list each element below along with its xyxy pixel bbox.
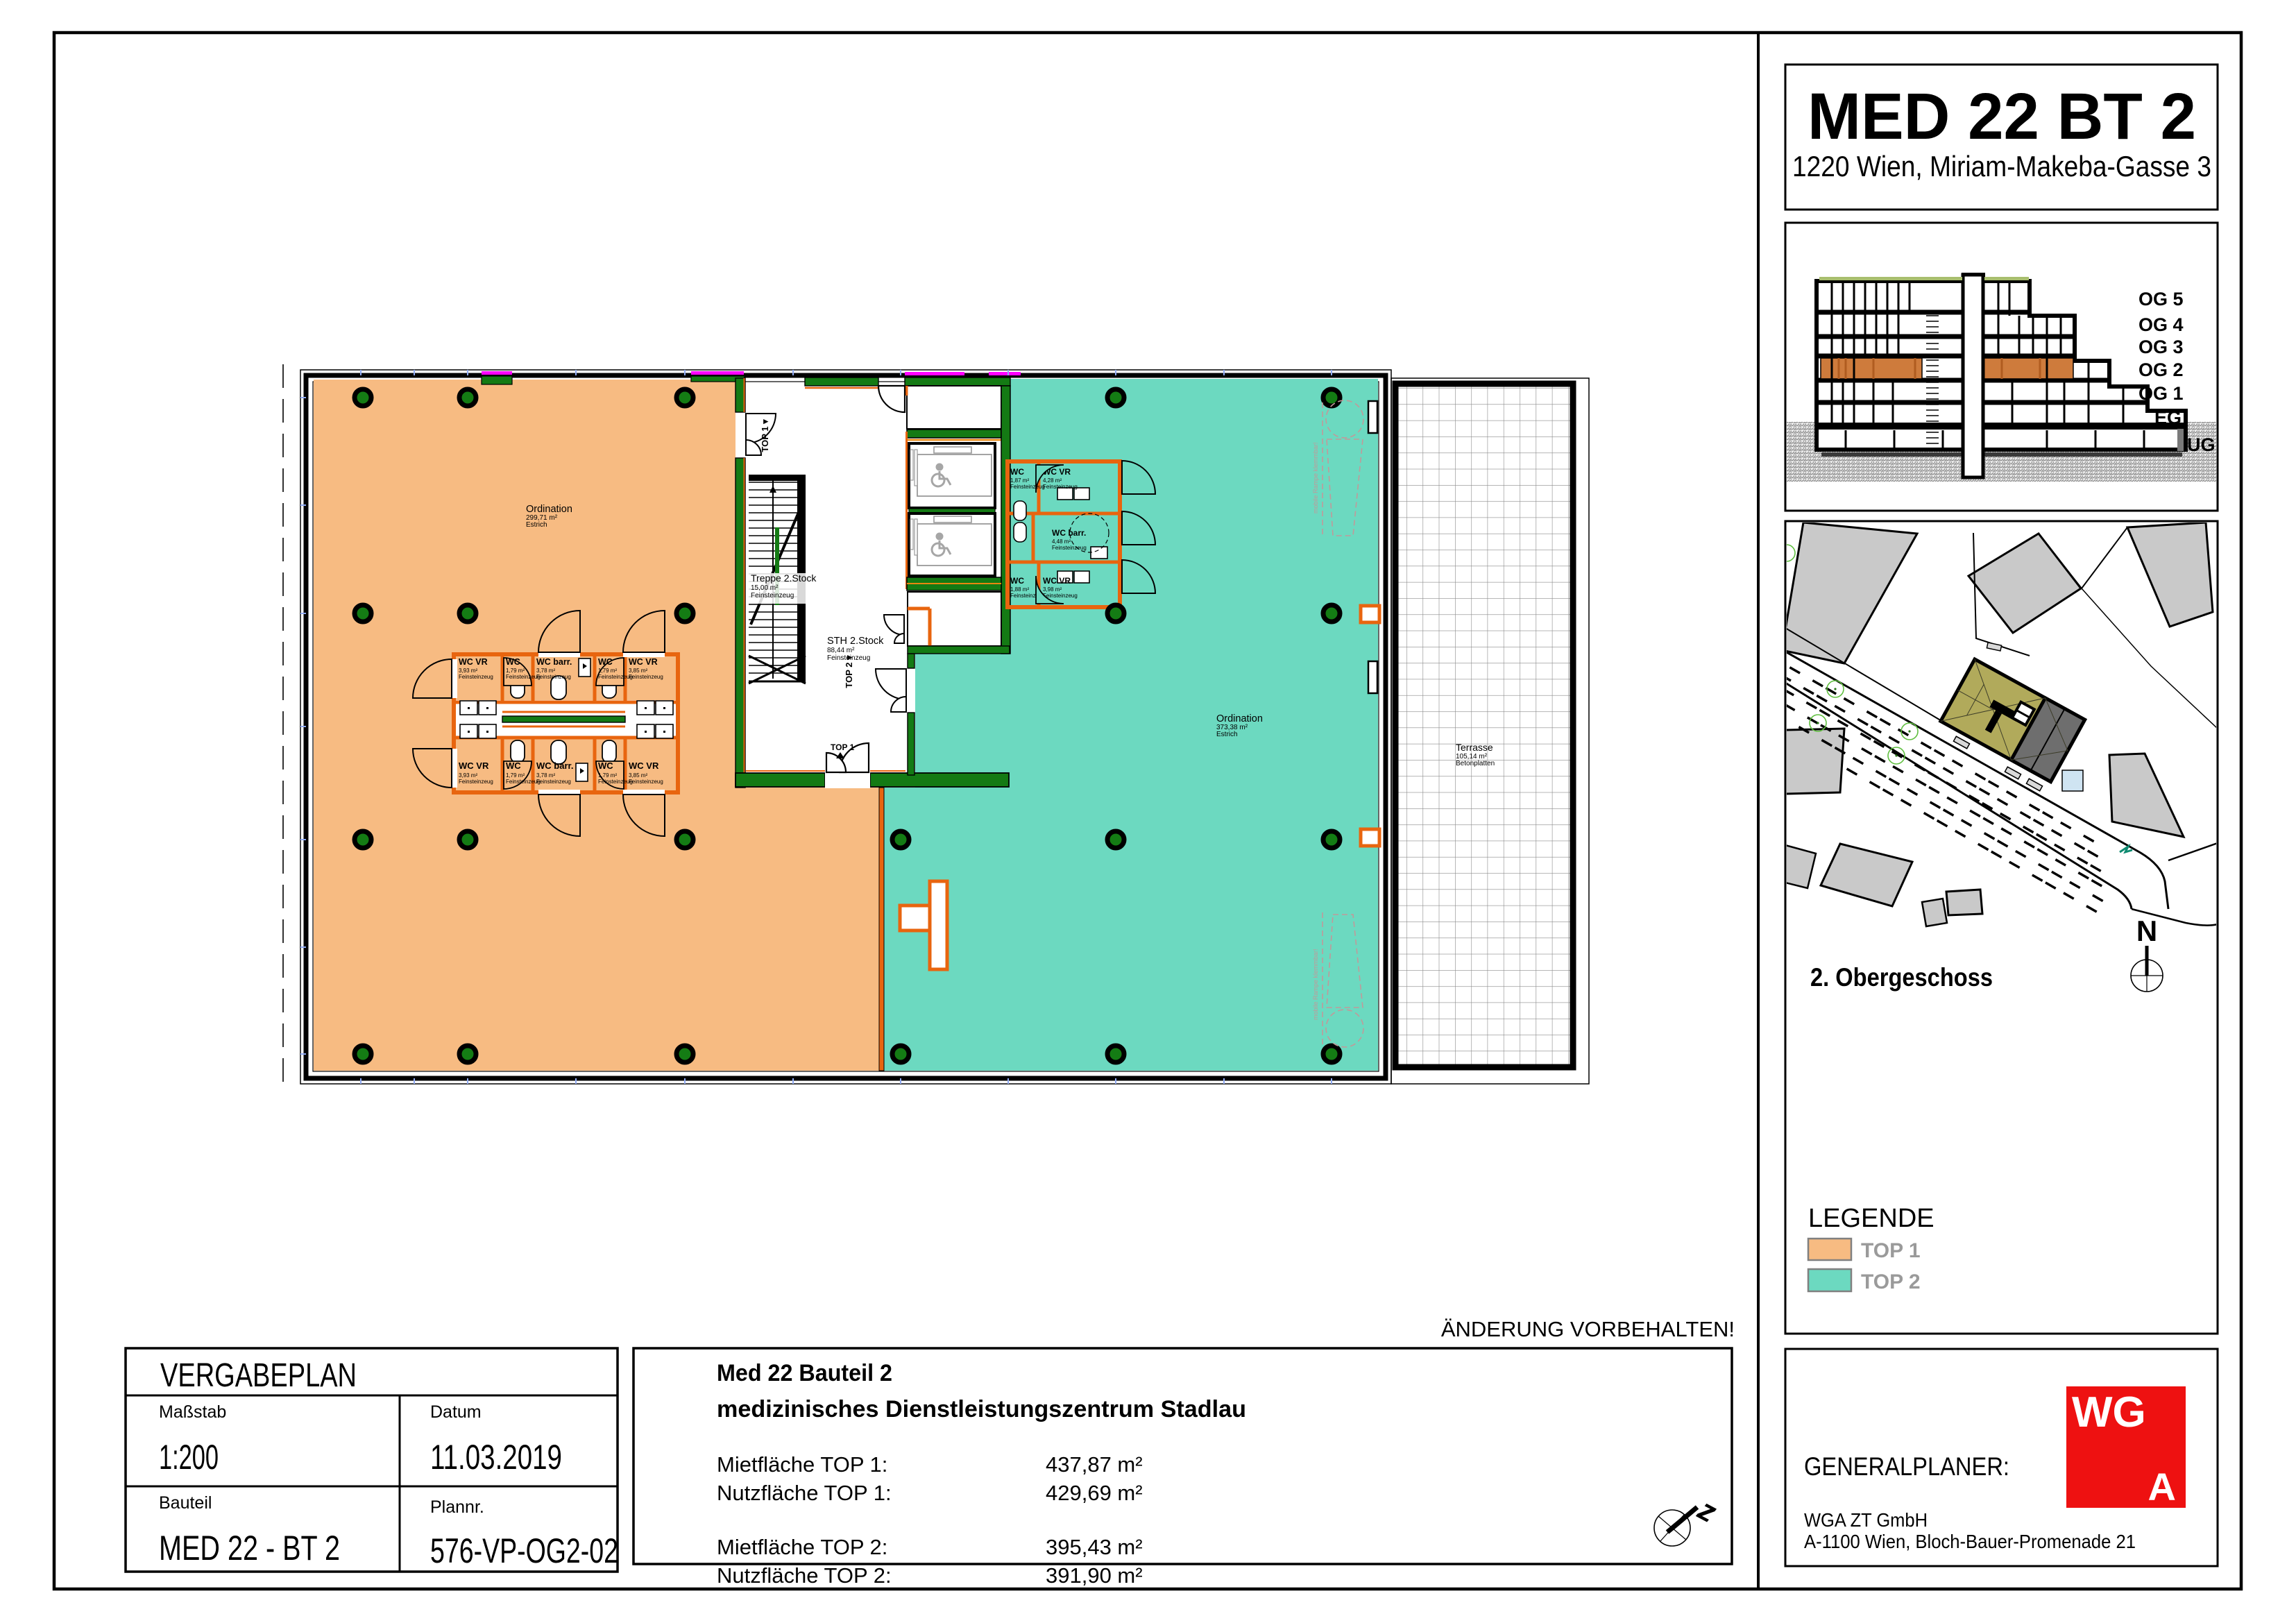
svg-text:Feinsteinzeug: Feinsteinzeug [629, 674, 663, 680]
svg-text:WC barr.: WC barr. [536, 760, 573, 771]
svg-text:medizinisches Dienstleistungsz: medizinisches Dienstleistungszentrum Sta… [717, 1396, 1246, 1422]
svg-text:3,93 m²: 3,93 m² [459, 668, 477, 674]
svg-text:TOP 1 ▾: TOP 1 ▾ [760, 419, 770, 452]
svg-text:1,79 m²: 1,79 m² [598, 772, 617, 779]
svg-text:Feinsteinzeug: Feinsteinzeug [751, 592, 794, 600]
svg-text:OG 1: OG 1 [2138, 383, 2184, 404]
svg-text:Estrich: Estrich [526, 521, 547, 529]
svg-text:Feinsteinzeug: Feinsteinzeug [1043, 593, 1078, 599]
svg-text:WC VR: WC VR [629, 760, 659, 771]
svg-text:1,88 m²: 1,88 m² [1010, 586, 1029, 593]
svg-text:429,69 m²: 429,69 m² [1046, 1481, 1143, 1505]
svg-text:Estrich: Estrich [1216, 731, 1238, 738]
svg-text:EG: EG [2154, 407, 2182, 428]
svg-text:WGA ZT GmbH: WGA ZT GmbH [1804, 1509, 1928, 1531]
svg-text:Feinsteinzeug: Feinsteinzeug [1010, 484, 1045, 490]
svg-text:Mietfläche TOP 1:: Mietfläche TOP 1: [717, 1452, 887, 1477]
svg-text:Feinsteinzeug: Feinsteinzeug [598, 674, 633, 680]
svg-text:Feinsteinzeug: Feinsteinzeug [1052, 545, 1087, 551]
svg-text:OG 5: OG 5 [2138, 289, 2184, 309]
svg-text:3,98 m²: 3,98 m² [1043, 586, 1062, 593]
svg-text:3,78 m²: 3,78 m² [536, 668, 555, 674]
svg-text:Feinsteinzeug: Feinsteinzeug [536, 674, 571, 680]
svg-text:Ordination: Ordination [1216, 713, 1263, 724]
svg-text:1:200: 1:200 [159, 1438, 219, 1477]
svg-text:Nutzfläche TOP 1:: Nutzfläche TOP 1: [717, 1481, 892, 1505]
svg-text:Feinsteinzeug: Feinsteinzeug [459, 779, 493, 785]
svg-text:Feinsteinzeug: Feinsteinzeug [459, 674, 493, 680]
svg-text:1220 Wien, Miriam-Makeba-Gasse: 1220 Wien, Miriam-Makeba-Gasse 3 [1792, 150, 2211, 182]
svg-text:WC VR: WC VR [1043, 576, 1071, 586]
svg-text:Bauteil: Bauteil [159, 1493, 212, 1513]
svg-text:3,85 m²: 3,85 m² [629, 772, 647, 779]
svg-text:WC barr.: WC barr. [1052, 528, 1086, 538]
svg-text:OG 4: OG 4 [2138, 314, 2184, 335]
svg-text:TOP 2: TOP 2 [1861, 1271, 1921, 1293]
svg-text:576-VP-OG2-02: 576-VP-OG2-02 [430, 1531, 618, 1570]
svg-text:4,48 m²: 4,48 m² [1052, 538, 1071, 545]
svg-text:WG: WG [2072, 1388, 2146, 1436]
svg-text:15,00 m²: 15,00 m² [751, 584, 779, 592]
svg-text:TOP 1: TOP 1 [831, 742, 855, 752]
svg-text:Datum: Datum [430, 1402, 482, 1422]
svg-text:Med 22 Bauteil 2: Med 22 Bauteil 2 [717, 1360, 892, 1386]
svg-text:WC: WC [598, 760, 613, 771]
svg-text:LEGENDE: LEGENDE [1808, 1204, 1934, 1233]
svg-text:Feinsteinzeug: Feinsteinzeug [598, 779, 633, 785]
svg-text:1,79 m²: 1,79 m² [598, 668, 617, 674]
svg-text:WC VR: WC VR [459, 760, 489, 771]
svg-text:WC: WC [598, 657, 613, 667]
svg-text:88,44 m²: 88,44 m² [827, 647, 855, 654]
svg-text:Feinsteinzeug: Feinsteinzeug [536, 779, 571, 785]
svg-text:Betonplatten: Betonplatten [1456, 760, 1495, 767]
svg-text:1,87 m²: 1,87 m² [1010, 477, 1029, 484]
svg-text:11.03.2019: 11.03.2019 [430, 1438, 562, 1477]
svg-text:Feinsteinzeug: Feinsteinzeug [827, 654, 870, 662]
svg-text:OG 2: OG 2 [2138, 359, 2184, 380]
svg-text:A: A [2148, 1465, 2176, 1509]
svg-text:TOP 1: TOP 1 [1861, 1239, 1921, 1262]
svg-text:GENERALPLANER:: GENERALPLANER: [1804, 1452, 2009, 1481]
svg-text:WC VR: WC VR [459, 657, 488, 667]
svg-text:Maßstab: Maßstab [159, 1402, 226, 1422]
svg-text:WC: WC [1010, 467, 1024, 477]
svg-text:VERGABEPLAN: VERGABEPLAN [160, 1357, 357, 1394]
svg-text:Feinsteinzeug: Feinsteinzeug [629, 779, 663, 785]
svg-text:Nutzfläche TOP 2:: Nutzfläche TOP 2: [717, 1563, 892, 1588]
svg-text:395,43 m²: 395,43 m² [1046, 1535, 1143, 1559]
svg-text:WC: WC [506, 657, 520, 667]
svg-text:Feinsteinzeug: Feinsteinzeug [506, 779, 541, 785]
svg-text:Ordination: Ordination [526, 504, 572, 515]
svg-text:1,79 m²: 1,79 m² [506, 772, 525, 779]
svg-text:3,93 m²: 3,93 m² [459, 772, 477, 779]
svg-text:391,90 m²: 391,90 m² [1046, 1563, 1143, 1588]
svg-text:437,87 m²: 437,87 m² [1046, 1452, 1143, 1477]
svg-text:MED 22 - BT 2: MED 22 - BT 2 [159, 1529, 340, 1567]
svg-text:OG 3: OG 3 [2138, 337, 2184, 357]
svg-text:mobile Rampe klemmbar!: mobile Rampe klemmbar! [1312, 442, 1319, 513]
svg-text:MED 22 BT 2: MED 22 BT 2 [1808, 80, 2196, 153]
svg-text:WC barr.: WC barr. [536, 657, 572, 667]
svg-text:mobile Rampe klemmbar!: mobile Rampe klemmbar! [1312, 949, 1319, 1020]
svg-text:Terrasse: Terrasse [1456, 742, 1493, 753]
svg-text:3,85 m²: 3,85 m² [629, 668, 647, 674]
svg-text:A-1100 Wien, Bloch-Bauer-Prome: A-1100 Wien, Bloch-Bauer-Promenade 21 [1804, 1531, 2136, 1552]
svg-text:1,79 m²: 1,79 m² [506, 668, 525, 674]
svg-text:UG: UG [2187, 434, 2216, 455]
svg-text:4,28 m²: 4,28 m² [1043, 477, 1062, 484]
svg-text:WC: WC [1010, 576, 1024, 586]
svg-text:WC VR: WC VR [629, 657, 658, 667]
svg-text:Treppe 2.Stock: Treppe 2.Stock [751, 572, 817, 584]
svg-text:2. Obergeschoss: 2. Obergeschoss [1810, 963, 1993, 992]
svg-text:Plannr.: Plannr. [430, 1497, 484, 1517]
svg-text:Feinsteinzeug: Feinsteinzeug [1043, 484, 1078, 490]
svg-text:STH 2.Stock: STH 2.Stock [827, 636, 884, 647]
svg-text:3,78 m²: 3,78 m² [536, 772, 555, 779]
svg-text:ÄNDERUNG VORBEHALTEN!: ÄNDERUNG VORBEHALTEN! [1441, 1317, 1735, 1341]
svg-text:Mietfläche TOP 2:: Mietfläche TOP 2: [717, 1535, 887, 1559]
svg-text:Feinsteinzeug: Feinsteinzeug [506, 674, 541, 680]
svg-text:N: N [2136, 915, 2157, 947]
svg-text:WC: WC [506, 760, 521, 771]
